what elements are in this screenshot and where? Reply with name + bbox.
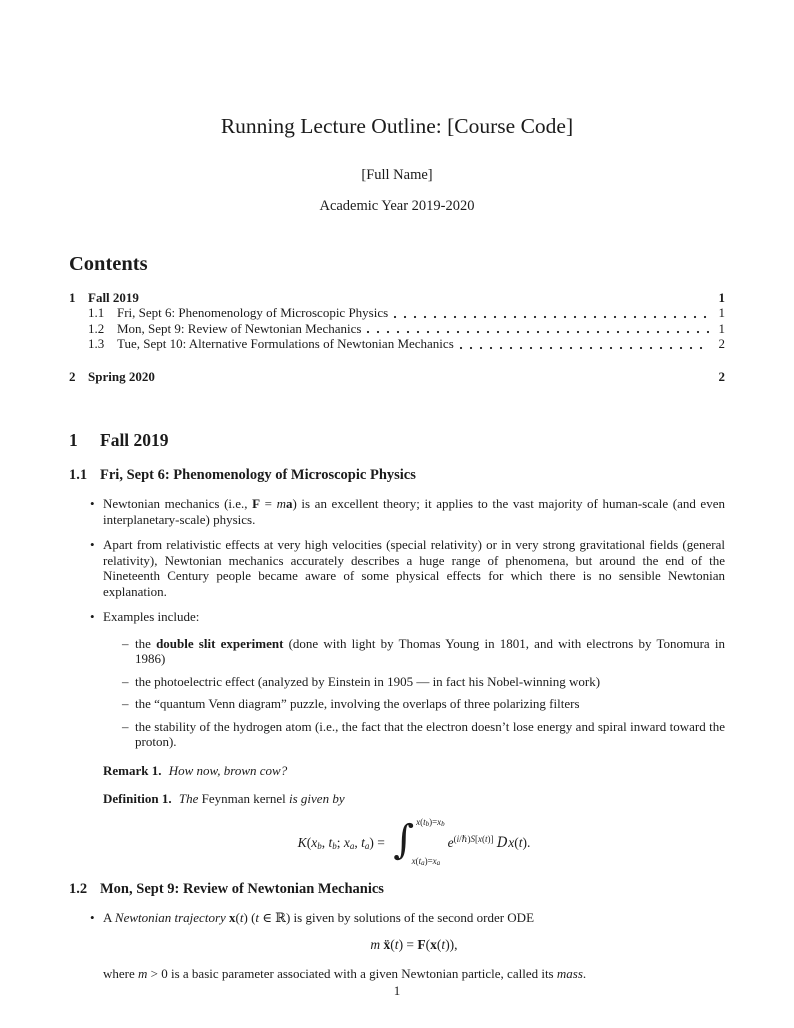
dash-icon: – [122,696,129,712]
toc-entry-1-1[interactable]: 1.1 Fri, Sept 6: Phenomenology of Micros… [88,305,725,320]
subsection-heading-1-2: 1.2Mon, Sept 9: Review of Newtonian Mech… [69,880,725,898]
subsection-title: Fri, Sept 6: Phenomenology of Microscopi… [100,467,416,483]
paragraph-quantum-venn: the “quantum Venn diagram” puzzle, invol… [135,696,725,712]
toc-entry-page: 2 [716,336,725,351]
toc-entry-title: Mon, Sept 9: Review of Newtonian Mechani… [117,321,361,336]
bullet-icon: • [90,537,95,553]
subsection-heading-1-1: 1.1Fri, Sept 6: Phenomenology of Microsc… [69,466,725,484]
toc-entry-page: 2 [716,369,725,384]
paragraph-hydrogen-atom: the stability of the hydrogen atom (i.e.… [135,719,725,750]
page-number: 1 [0,983,794,998]
list-item: – the double slit experiment (done with … [122,636,725,667]
toc-entry-number: 2 [69,369,88,384]
remark-paragraph: Remark 1. How now, brown cow? [103,763,725,779]
dash-icon: – [122,719,129,735]
bullet-list: • Newtonian mechanics (i.e., F = ma) is … [69,496,725,869]
toc-entry-title: Fri, Sept 6: Phenomenology of Microscopi… [117,305,388,320]
toc-entry-number: 1.3 [88,336,117,351]
paragraph-newtonian-mechanics: Newtonian mechanics (i.e., F = ma) is an… [103,496,725,527]
paragraph-mass: where m > 0 is a basic parameter associa… [103,966,725,982]
bullet-icon: • [90,609,95,625]
toc-entry-2-spring-2020[interactable]: 2 Spring 2020 2 [69,369,725,384]
toc-entry-title: Tue, Sept 10: Alternative Formulations o… [117,336,454,351]
definition-paragraph: Definition 1. The Feynman kernel is give… [103,791,725,807]
toc-dot-leader [393,315,709,319]
list-item: • Newtonian mechanics (i.e., F = ma) is … [69,496,725,527]
section-number: 1 [69,430,100,451]
toc-entry-1-fall-2019[interactable]: 1 Fall 2019 1 [69,290,725,305]
toc-entry-1-3[interactable]: 1.3 Tue, Sept 10: Alternative Formulatio… [88,336,725,351]
bullet-icon: • [90,496,95,512]
subsection-number: 1.1 [69,466,100,484]
toc-entry-number: 1 [69,290,88,305]
list-item: – the stability of the hydrogen atom (i.… [122,719,725,750]
toc-entry-number: 1.2 [88,321,117,336]
bullet-list: • A Newtonian trajectory x(t) (t ∈ ℝ) is… [69,910,725,982]
toc-dot-leader [366,330,709,334]
table-of-contents: Contents 1 Fall 2019 1 1.1 Fri, Sept 6: … [69,252,725,384]
list-item: • A Newtonian trajectory x(t) (t ∈ ℝ) is… [69,910,725,926]
bullet-icon: • [90,910,95,926]
paragraph-newtonian-trajectory: A Newtonian trajectory x(t) (t ∈ ℝ) is g… [103,910,725,926]
list-item: – the “quantum Venn diagram” puzzle, inv… [122,696,725,712]
section-heading-fall-2019: 1Fall 2019 [69,430,725,451]
list-item: – the photoelectric effect (analyzed by … [122,674,725,690]
paragraph-relativistic-effects: Apart from relativistic effects at very … [103,537,725,599]
list-item: • Examples include: [69,609,725,625]
document-page: Running Lecture Outline: [Course Code] [… [0,0,794,1028]
contents-heading: Contents [69,252,725,276]
document-title: Running Lecture Outline: [Course Code] [69,113,725,139]
toc-entry-number: 1.1 [88,305,117,320]
toc-entry-page: 1 [716,290,725,305]
paragraph-double-slit: the double slit experiment (done with li… [135,636,725,667]
toc-entry-title: Spring 2020 [88,369,155,384]
subsection-number: 1.2 [69,880,100,898]
academic-year: Academic Year 2019-2020 [0,198,794,215]
toc-entry-1-2[interactable]: 1.2 Mon, Sept 9: Review of Newtonian Mec… [88,321,725,336]
dash-icon: – [122,674,129,690]
toc-dot-leader [459,346,709,350]
sub-bullet-list: – the double slit experiment (done with … [122,636,725,750]
toc-entry-page: 1 [716,321,725,336]
dash-icon: – [122,636,129,652]
paragraph-photoelectric: the photoelectric effect (analyzed by Ei… [135,674,725,690]
subsection-title: Mon, Sept 9: Review of Newtonian Mechani… [100,881,384,897]
toc-entry-title: Fall 2019 [88,290,139,305]
author-name: [Full Name] [0,167,794,184]
paragraph-examples-include: Examples include: [103,609,725,625]
feynman-kernel-formula: K(xb, tb; xa, ta) = ∫x(tb)=xbx(ta)=xae(i… [103,819,725,869]
newton-ode-formula: m ẍ(t) = F(x(t)), [103,937,725,953]
list-item: • Apart from relativistic effects at ver… [69,537,725,599]
toc-entry-page: 1 [716,305,725,320]
section-title: Fall 2019 [100,430,169,450]
